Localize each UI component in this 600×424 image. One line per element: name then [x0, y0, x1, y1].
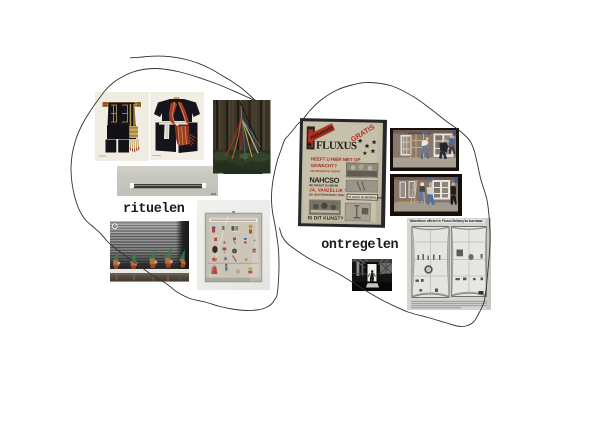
svg-text:Waardebon officieel in Fluxus: Waardebon officieel in Fluxus Bellamy'ka… — [409, 219, 482, 223]
svg-text:IS DIT KUNST?: IS DIT KUNST? — [308, 216, 344, 223]
svg-text:FLUXUS IN NEDERLAND: FLUXUS IN NEDERLAND — [349, 195, 383, 200]
svg-text:FLUXUS: FLUXUS — [316, 140, 357, 153]
svg-text:DE ACHTERKRANT OOK: DE ACHTERKRANT OOK — [309, 193, 345, 198]
svg-text:DE NIEUWSTE KRANT: DE NIEUWSTE KRANT — [311, 169, 341, 174]
svg-text:GEWACHT?: GEWACHT? — [311, 163, 338, 169]
svg-text:HEEFT U HIER NIET OP: HEEFT U HIER NIET OP — [311, 157, 361, 163]
